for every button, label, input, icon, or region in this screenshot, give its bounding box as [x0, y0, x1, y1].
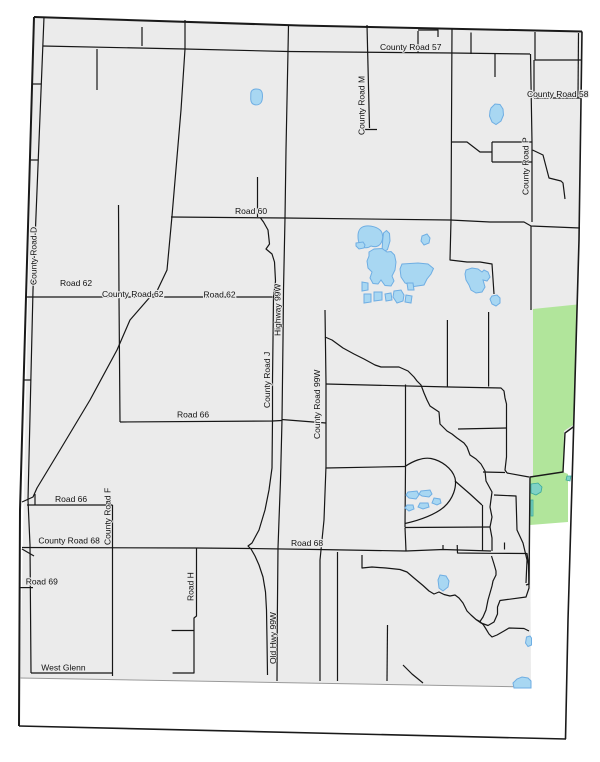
svg-text:Highway 99W: Highway 99W: [273, 284, 283, 336]
svg-text:Road 69: Road 69: [26, 577, 58, 587]
svg-text:Road 66: Road 66: [177, 410, 209, 420]
svg-text:Old Hwy 99W: Old Hwy 99W: [268, 612, 278, 664]
svg-text:Road 66: Road 66: [55, 494, 87, 504]
svg-text:Road 62: Road 62: [60, 278, 92, 288]
svg-text:County Road 99W: County Road 99W: [312, 370, 322, 439]
svg-text:County Road 57: County Road 57: [380, 42, 442, 52]
svg-text:County Road D: County Road D: [29, 227, 39, 285]
svg-text:West Glenn: West Glenn: [41, 663, 86, 673]
svg-text:County Road F: County Road F: [103, 488, 113, 545]
svg-text:Road H: Road H: [186, 572, 196, 601]
svg-text:Road 60: Road 60: [235, 206, 267, 216]
svg-text:County Road 68: County Road 68: [38, 536, 100, 546]
svg-text:County Road P: County Road P: [521, 137, 531, 195]
svg-text:Road 68: Road 68: [291, 538, 323, 548]
svg-text:County Road 58: County Road 58: [527, 89, 589, 99]
svg-text:County Road M: County Road M: [357, 76, 367, 135]
svg-text:County Road J: County Road J: [262, 352, 272, 408]
svg-text:County Road 62: County Road 62: [102, 289, 164, 299]
svg-text:Road 62: Road 62: [204, 290, 236, 300]
